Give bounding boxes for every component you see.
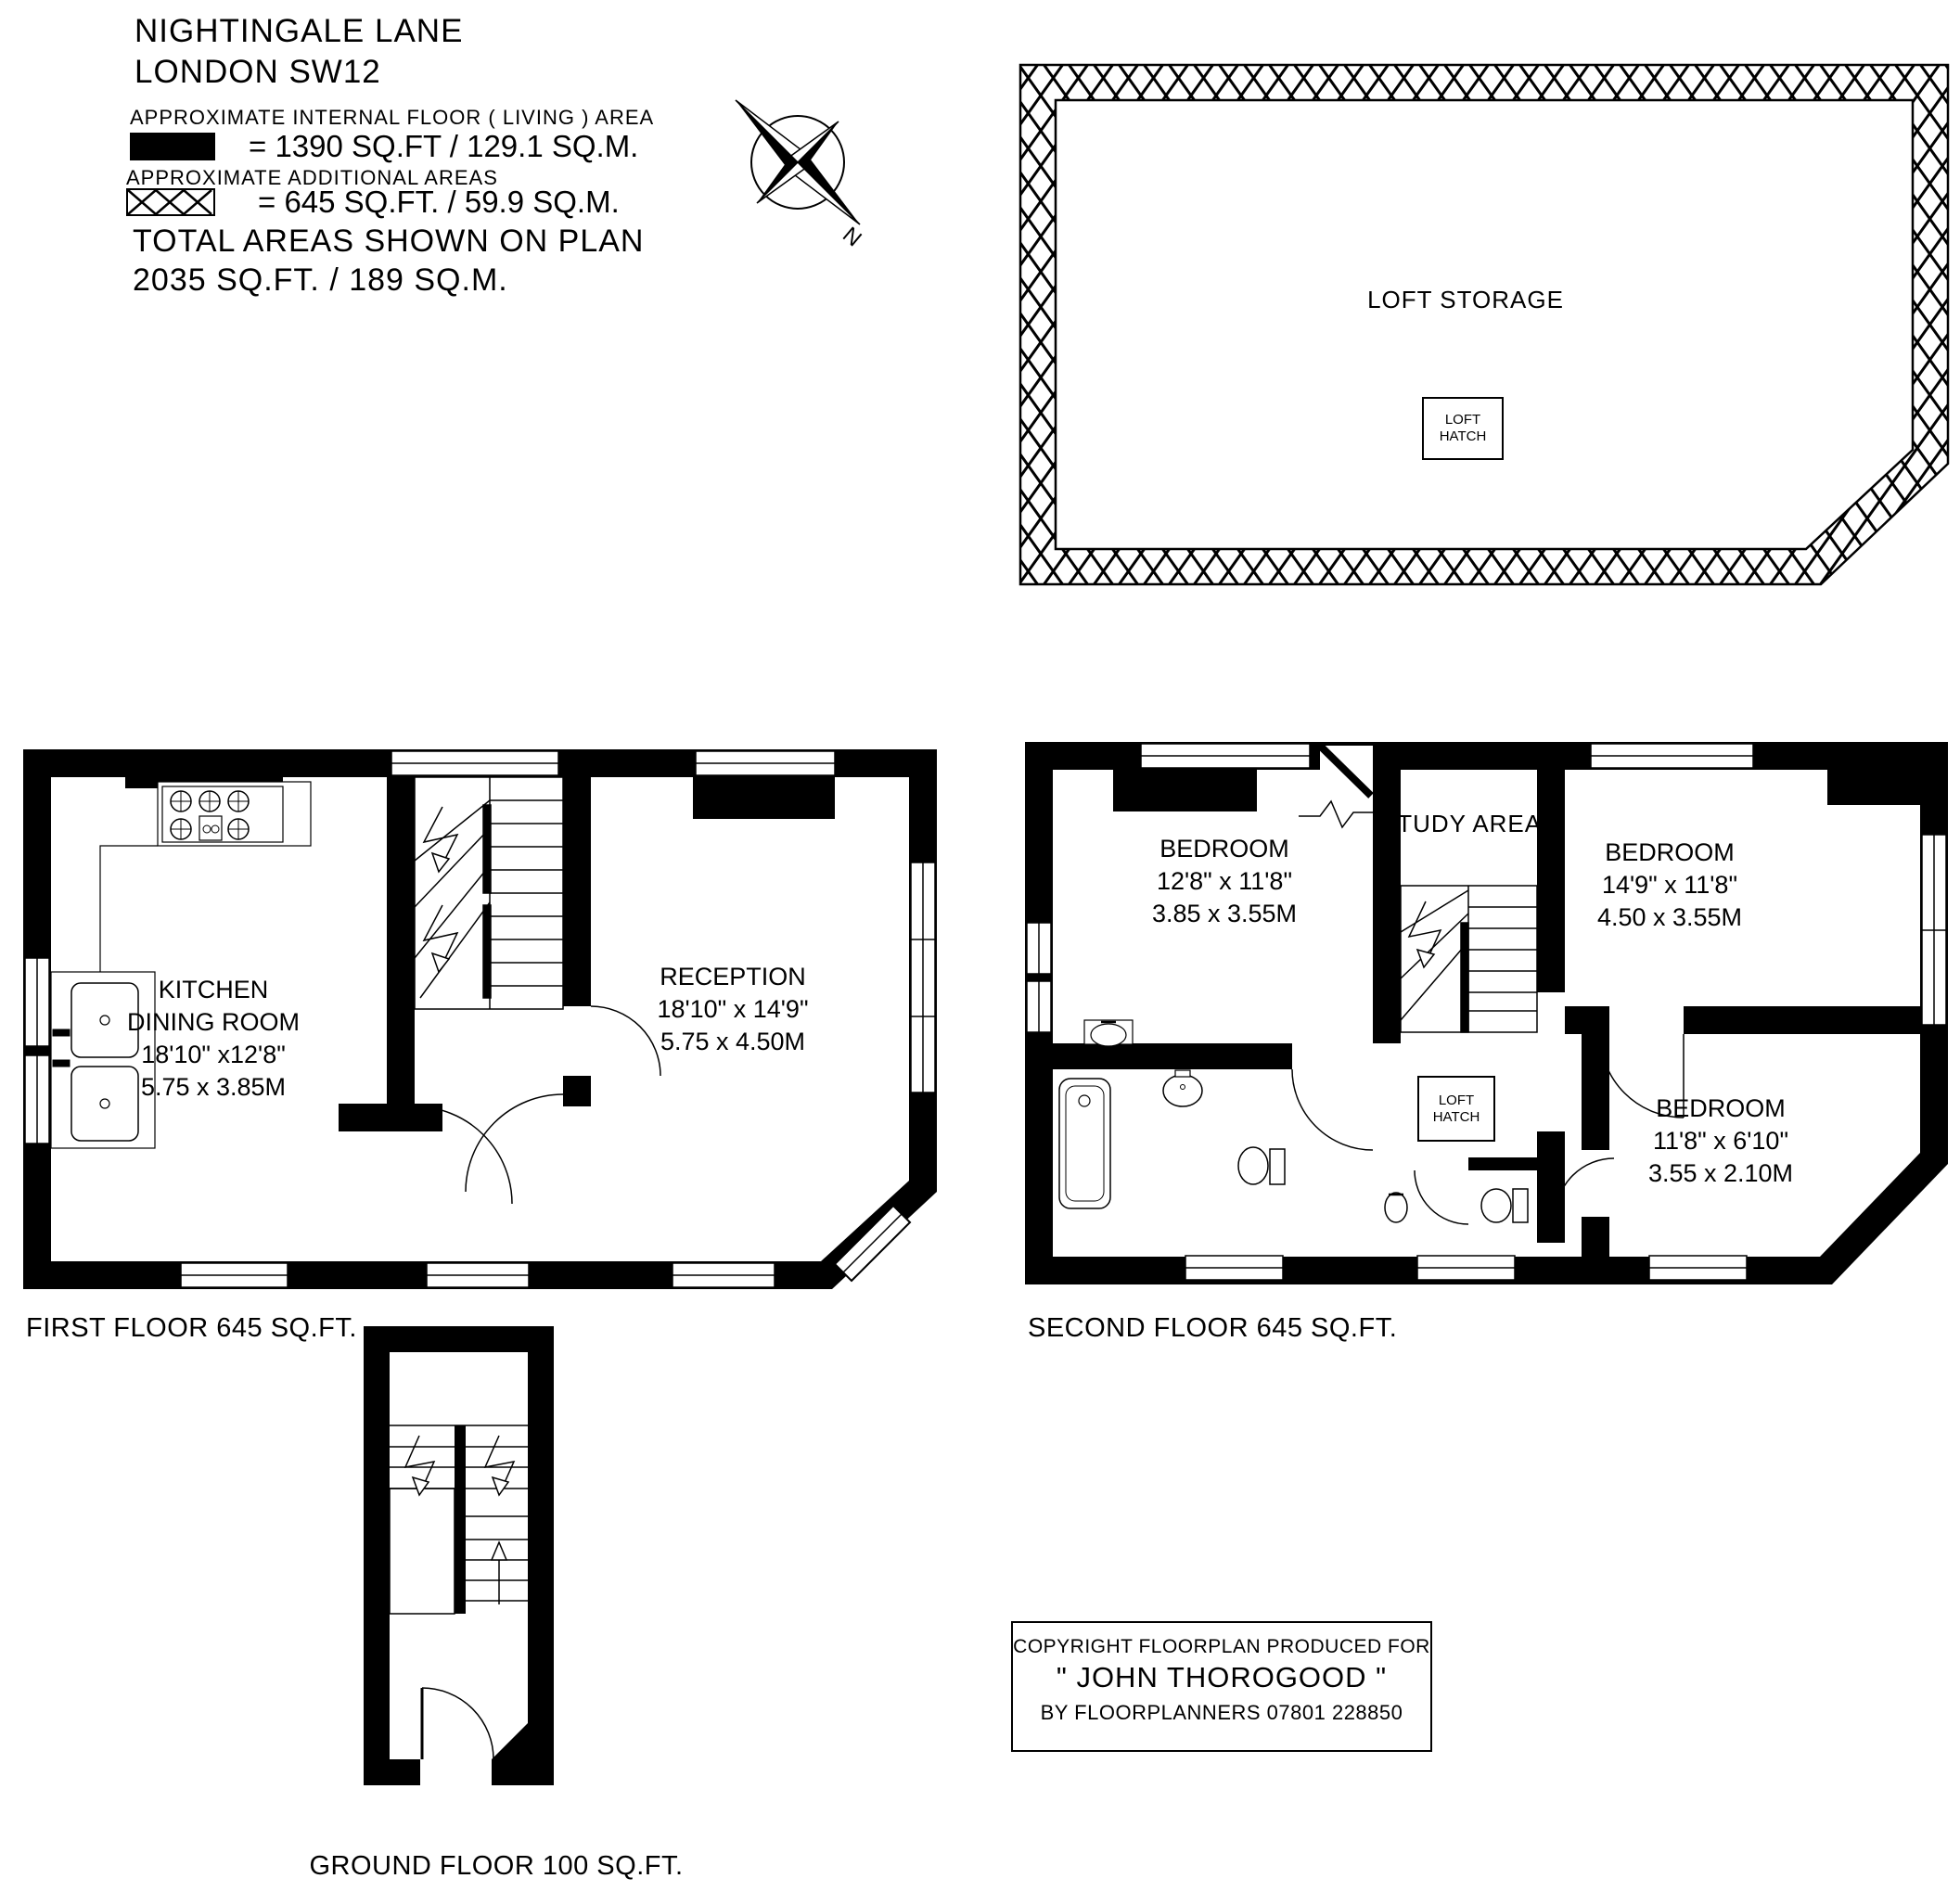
living-area-value: = 1390 SQ.FT / 129.1 SQ.M. (249, 129, 638, 164)
reception-label: RECEPTION 18'10" x 14'9" 5.75 x 4.50M (561, 961, 904, 1058)
stair-divider-wall (455, 1425, 466, 1614)
compass-icon: N (724, 74, 890, 260)
page-title-line1: NIGHTINGALE LANE (135, 13, 463, 50)
basin-icon-wc (1385, 1193, 1407, 1222)
kitchen-dims-m: 5.75 x 3.85M (42, 1071, 385, 1104)
chimney-breast-right (1827, 770, 1920, 805)
toilet-icon-wc (1481, 1189, 1528, 1222)
bedroom-left-dims-m: 3.85 x 3.55M (1053, 898, 1396, 930)
loft-storage-label: LOFT STORAGE (1187, 286, 1744, 314)
loft-hatch-line1: LOFT (1424, 412, 1502, 428)
copyright-line1: COPYRIGHT FLOORPLAN PRODUCED FOR (1013, 1636, 1430, 1658)
bathtub-icon (1059, 1079, 1110, 1208)
ground-floor-plan (364, 1326, 554, 1785)
bedroom-small-line1: BEDROOM (1549, 1093, 1892, 1125)
kitchen-label: KITCHEN DINING ROOM 18'10" x12'8" 5.75 x… (42, 974, 385, 1104)
kitchen-dims-ft: 18'10" x12'8" (42, 1039, 385, 1071)
entrance-door-arc (422, 1688, 493, 1759)
additional-area-value: = 645 SQ.FT. / 59.9 SQ.M. (258, 185, 620, 220)
reception-line1: RECEPTION (561, 961, 904, 993)
reception-dims-m: 5.75 x 4.50M (561, 1026, 904, 1058)
additional-area-swatch (126, 188, 215, 216)
second-hatch-line2: HATCH (1419, 1109, 1493, 1126)
stairs (415, 777, 563, 1009)
copyright-box: COPYRIGHT FLOORPLAN PRODUCED FOR " JOHN … (1011, 1621, 1432, 1752)
loft-inner-area (1056, 100, 1913, 549)
toilet-icon-bathroom (1238, 1147, 1285, 1184)
compass-north-label: N (838, 223, 866, 252)
bedroom-right-label: BEDROOM 14'9" x 11'8" 4.50 x 3.55M (1498, 837, 1841, 934)
stove-icon (158, 782, 311, 846)
loft-hatch-line2: HATCH (1424, 428, 1502, 445)
bedroom-left-label: BEDROOM 12'8" x 11'8" 3.85 x 3.55M (1053, 833, 1396, 930)
chimney-breast-left (1113, 770, 1257, 811)
floorplan-sheet: NIGHTINGALE LANE LONDON SW12 APPROXIMATE… (0, 0, 1960, 1904)
chimney-breast (693, 777, 835, 819)
bedroom-right-dims-ft: 14'9" x 11'8" (1498, 869, 1841, 901)
kitchen-line1: KITCHEN (42, 974, 385, 1006)
loft-hatch-box-second-floor: LOFT HATCH (1417, 1076, 1495, 1142)
basin-icon-bedroom (1084, 1020, 1133, 1046)
ground-floor-caption: GROUND FLOOR 100 SQ.FT. (278, 1851, 714, 1882)
copyright-line3: BY FLOORPLANNERS 07801 228850 (1013, 1701, 1430, 1725)
second-hatch-line1: LOFT (1419, 1093, 1493, 1109)
loft-plan-svg (1016, 60, 1953, 589)
living-area-swatch (130, 133, 215, 160)
total-areas-line2: 2035 SQ.FT. / 189 SQ.M. (133, 262, 508, 299)
loft-hatch-box: LOFT HATCH (1422, 397, 1504, 460)
living-area-label: APPROXIMATE INTERNAL FLOOR ( LIVING ) AR… (130, 106, 654, 130)
copyright-line2: " JOHN THOROGOOD " (1013, 1661, 1430, 1694)
ground-floor-plan-svg (364, 1326, 554, 1785)
second-floor-caption: SECOND FLOOR 645 SQ.FT. (1028, 1313, 1397, 1344)
bedroom-right-line1: BEDROOM (1498, 837, 1841, 869)
total-areas-line1: TOTAL AREAS SHOWN ON PLAN (133, 224, 645, 260)
bedroom-small-label: BEDROOM 11'8" x 6'10" 3.55 x 2.10M (1549, 1093, 1892, 1190)
bedroom-right-dims-m: 4.50 x 3.55M (1498, 901, 1841, 934)
first-floor-caption: FIRST FLOOR 645 SQ.FT. (26, 1313, 357, 1344)
kitchen-line2: DINING ROOM (42, 1006, 385, 1039)
bedroom-small-dims-m: 3.55 x 2.10M (1549, 1157, 1892, 1190)
bedroom-left-dims-ft: 12'8" x 11'8" (1053, 865, 1396, 898)
second-floor-plan: STUDY AREA BEDROOM 12'8" x 11'8" 3.85 x … (1025, 742, 1948, 1284)
first-floor-plan: KITCHEN DINING ROOM 18'10" x12'8" 5.75 x… (23, 749, 937, 1289)
loft-plan: LOFT STORAGE LOFT HATCH (1016, 60, 1953, 589)
chamfer-corner (492, 1723, 528, 1759)
bedroom-small-dims-ft: 11'8" x 6'10" (1549, 1125, 1892, 1157)
basin-icon-bathroom (1163, 1070, 1202, 1106)
page-title-line2: LONDON SW12 (135, 54, 381, 91)
bedroom-left-line1: BEDROOM (1053, 833, 1396, 865)
entrance-opening (420, 1759, 492, 1785)
reception-dims-ft: 18'10" x 14'9" (561, 993, 904, 1026)
